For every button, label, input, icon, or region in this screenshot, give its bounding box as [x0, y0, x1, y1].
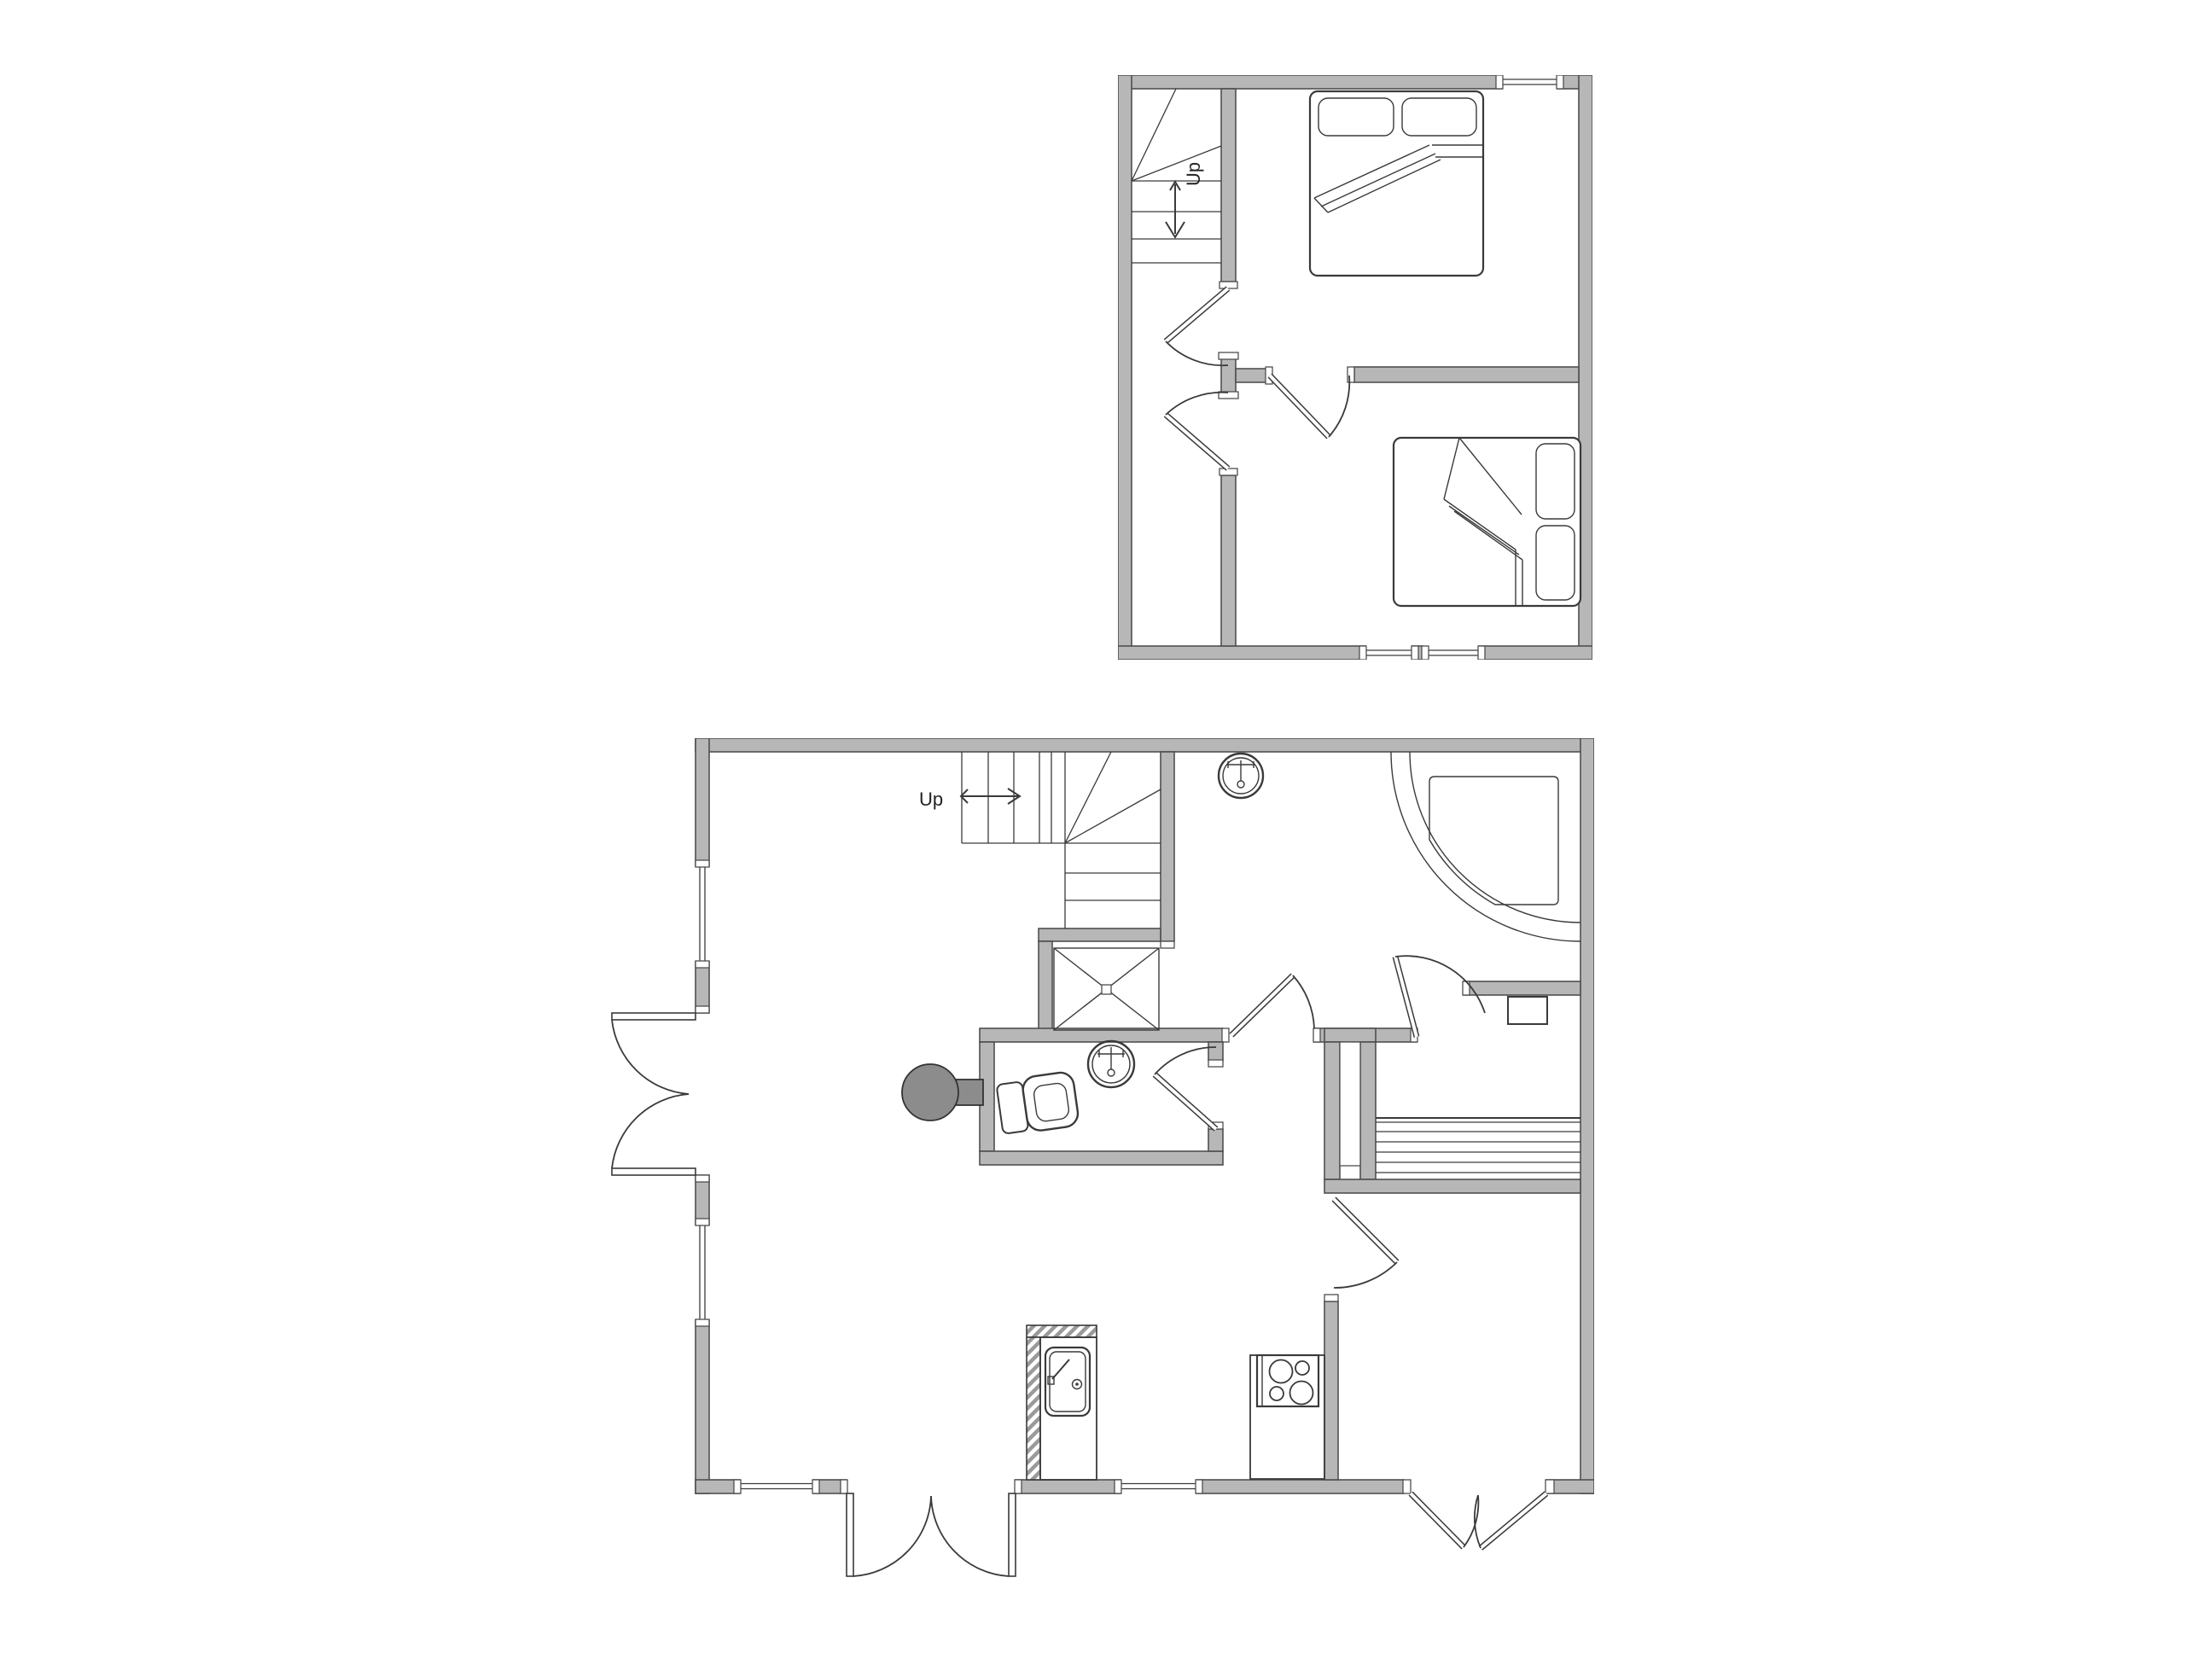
window-kitchen [1115, 1480, 1202, 1493]
staircase: Up [919, 752, 1161, 928]
stair-direction-arrow [961, 789, 1020, 804]
kitchen [1027, 1325, 1324, 1480]
stair-direction-arrow [1166, 182, 1185, 237]
double-bed-icon [1310, 91, 1483, 276]
washbasin-icon [1219, 754, 1263, 798]
ground-floor-plan: Up [610, 738, 1594, 1592]
kitchen-sink-icon [1027, 1325, 1097, 1480]
french-door-left-icon [612, 1006, 709, 1182]
shower-cabin-icon [1054, 948, 1159, 1030]
water-heater-icon [902, 1064, 983, 1121]
exterior-walls [696, 738, 1594, 1493]
door-bedroom-2 [1270, 375, 1349, 437]
window-bottom-left [734, 1480, 819, 1493]
sauna [1376, 997, 1580, 1173]
sauna-benches-icon [1376, 1118, 1580, 1173]
windows [696, 860, 1202, 1493]
window-bottom-right [1422, 646, 1485, 660]
corner-shower-icon [1391, 752, 1580, 941]
double-bed-icon [1394, 438, 1580, 606]
stove-icon [1250, 1355, 1324, 1479]
upper-floor-plan: Up [1118, 75, 1592, 660]
double-door-bottom-right-icon [1403, 1480, 1554, 1548]
up-label: Up [1183, 162, 1204, 186]
bathroom [902, 1041, 1134, 1136]
staircase: Up [1132, 89, 1221, 263]
up-label: Up [919, 789, 943, 810]
door-landing [1166, 393, 1228, 469]
floor-plan-canvas: Up [0, 0, 2212, 1659]
sauna-heater-icon [1508, 997, 1547, 1024]
window-left-lower [696, 1219, 709, 1326]
door-washroom [1231, 975, 1314, 1035]
washbasin-icon [1088, 1041, 1134, 1087]
french-door-bottom-icon [841, 1480, 1022, 1576]
window-top [1496, 75, 1563, 89]
window-bottom-left [1359, 646, 1418, 660]
toilet-icon [996, 1071, 1080, 1136]
door-dining [1334, 1199, 1397, 1288]
window-left-upper [696, 860, 709, 968]
door-sauna [1395, 956, 1485, 1037]
door-bathroom [1155, 1047, 1216, 1129]
